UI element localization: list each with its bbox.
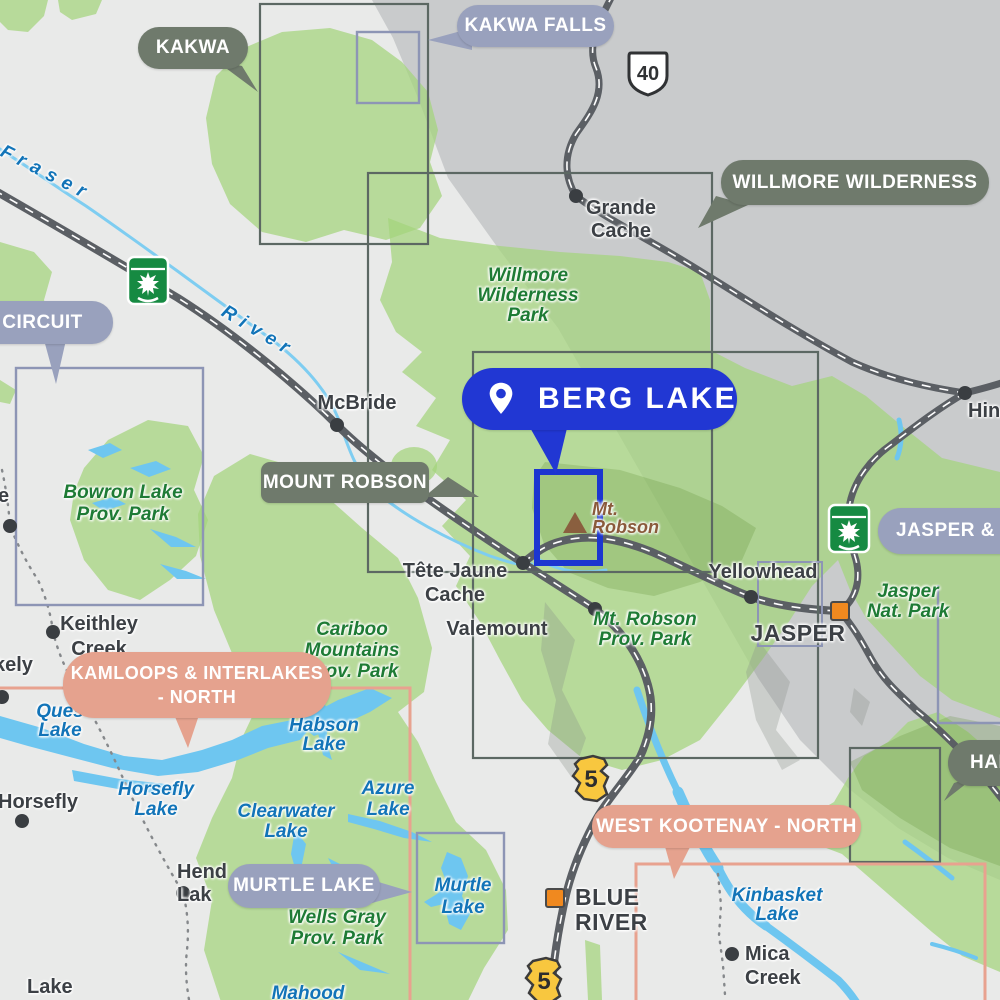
murtle-lake-badge[interactable]: MURTLE LAKE (228, 864, 380, 908)
map-stage: 40 5 5 GrandeCacheMcBrideTête JauneCache… (0, 0, 1000, 1000)
willmore-wilderness-badge[interactable]: WILLMORE WILDERNESS (721, 160, 989, 205)
hwy5-number-south: 5 (537, 968, 550, 995)
mt-robson-label-label: Mt.Robson (592, 500, 659, 536)
hwy16-shield-east (829, 505, 869, 552)
hwy40-number: 40 (637, 63, 659, 85)
town-grande-cache-label: GrandeCache (586, 197, 656, 243)
town-cutoff-e-label: e (0, 486, 9, 506)
town-tete-jaune-cache-label: Tête JauneCache (403, 559, 507, 607)
kakwa-badge[interactable]: KAKWA (138, 27, 248, 69)
town-valemount-label: Valemount (446, 619, 547, 639)
west-kootenay-badge[interactable]: WEST KOOTENAY - NORTH (592, 805, 861, 848)
blue-river-marker[interactable] (546, 889, 564, 907)
park-willmore-label: WillmoreWildernessPark (477, 266, 578, 326)
town-dot-hinton[interactable] (958, 386, 972, 400)
town-dot-mica[interactable] (725, 947, 739, 961)
lake-horsefly-label: HorseflyLake (118, 780, 194, 820)
town-dot-likely[interactable] (0, 690, 9, 704)
lake-mahood-label: Mahood (272, 984, 345, 1000)
park-bowron-label: Bowron LakeProv. Park (63, 482, 182, 526)
lake-murtle-label: MurtleLake (435, 875, 492, 919)
town-dot-tete-jaune[interactable] (516, 556, 530, 570)
hwy40-shield: 40 (629, 53, 667, 95)
jasper-area-badge[interactable]: JASPER & A (878, 508, 1000, 554)
town-dot-keithley[interactable] (46, 625, 60, 639)
kamloops-interlakes-badge[interactable]: KAMLOOPS & INTERLAKES- NORTH (63, 652, 331, 718)
jasper-marker[interactable] (831, 602, 849, 620)
berg-lake-badge[interactable]: BERG LAKE (462, 368, 737, 430)
hwy5-shield-south: 5 (526, 958, 561, 1000)
town-dot-horsefly[interactable] (15, 814, 29, 828)
town-dot-mcbride[interactable] (330, 418, 344, 432)
circuit-badge[interactable]: CIRCUIT (0, 301, 113, 344)
town-jasper-label: JASPER (750, 622, 845, 645)
location-pin-icon (484, 379, 518, 419)
town-yellowhead-label: Yellowhead (709, 562, 818, 582)
town-hendrix-label: HendLak (177, 861, 227, 907)
town-dot-grande-cache[interactable] (569, 189, 583, 203)
park-wells-gray-label: Wells GrayProv. Park (288, 907, 386, 949)
town-hinton-label: Hin (968, 401, 1000, 421)
town-dot-yellowhead[interactable] (744, 590, 758, 604)
lake-clearwater-label: ClearwaterLake (237, 802, 334, 842)
hamber-badge[interactable]: HAM (948, 740, 1000, 786)
hwy5-shield-north: 5 (573, 756, 608, 801)
town-mcbride-label: McBride (318, 393, 397, 413)
lake-azure-label: AzureLake (362, 778, 415, 820)
lake-kinbasket-label: KinbasketLake (732, 886, 823, 924)
town-likely-label: kely (0, 655, 33, 675)
town-mica-creek-label: MicaCreek (745, 942, 801, 990)
town-horsefly-label: Horsefly (0, 792, 78, 812)
town-lake-label: Lake (27, 977, 73, 997)
lake-habson-label: HabsonLake (289, 716, 359, 754)
town-dot-cutoff[interactable] (3, 519, 17, 533)
kakwa-falls-badge[interactable]: KAKWA FALLS (457, 5, 614, 47)
hwy5-number: 5 (584, 766, 597, 793)
hwy16-shield-west (128, 257, 168, 304)
park-mt-robson-label: Mt. RobsonProv. Park (593, 610, 696, 650)
park-jasper-np-label: JasperNat. Park (867, 582, 949, 622)
mount-robson-badge[interactable]: MOUNT ROBSON (261, 462, 429, 503)
town-blue-river-label: BLUERIVER (575, 885, 648, 935)
